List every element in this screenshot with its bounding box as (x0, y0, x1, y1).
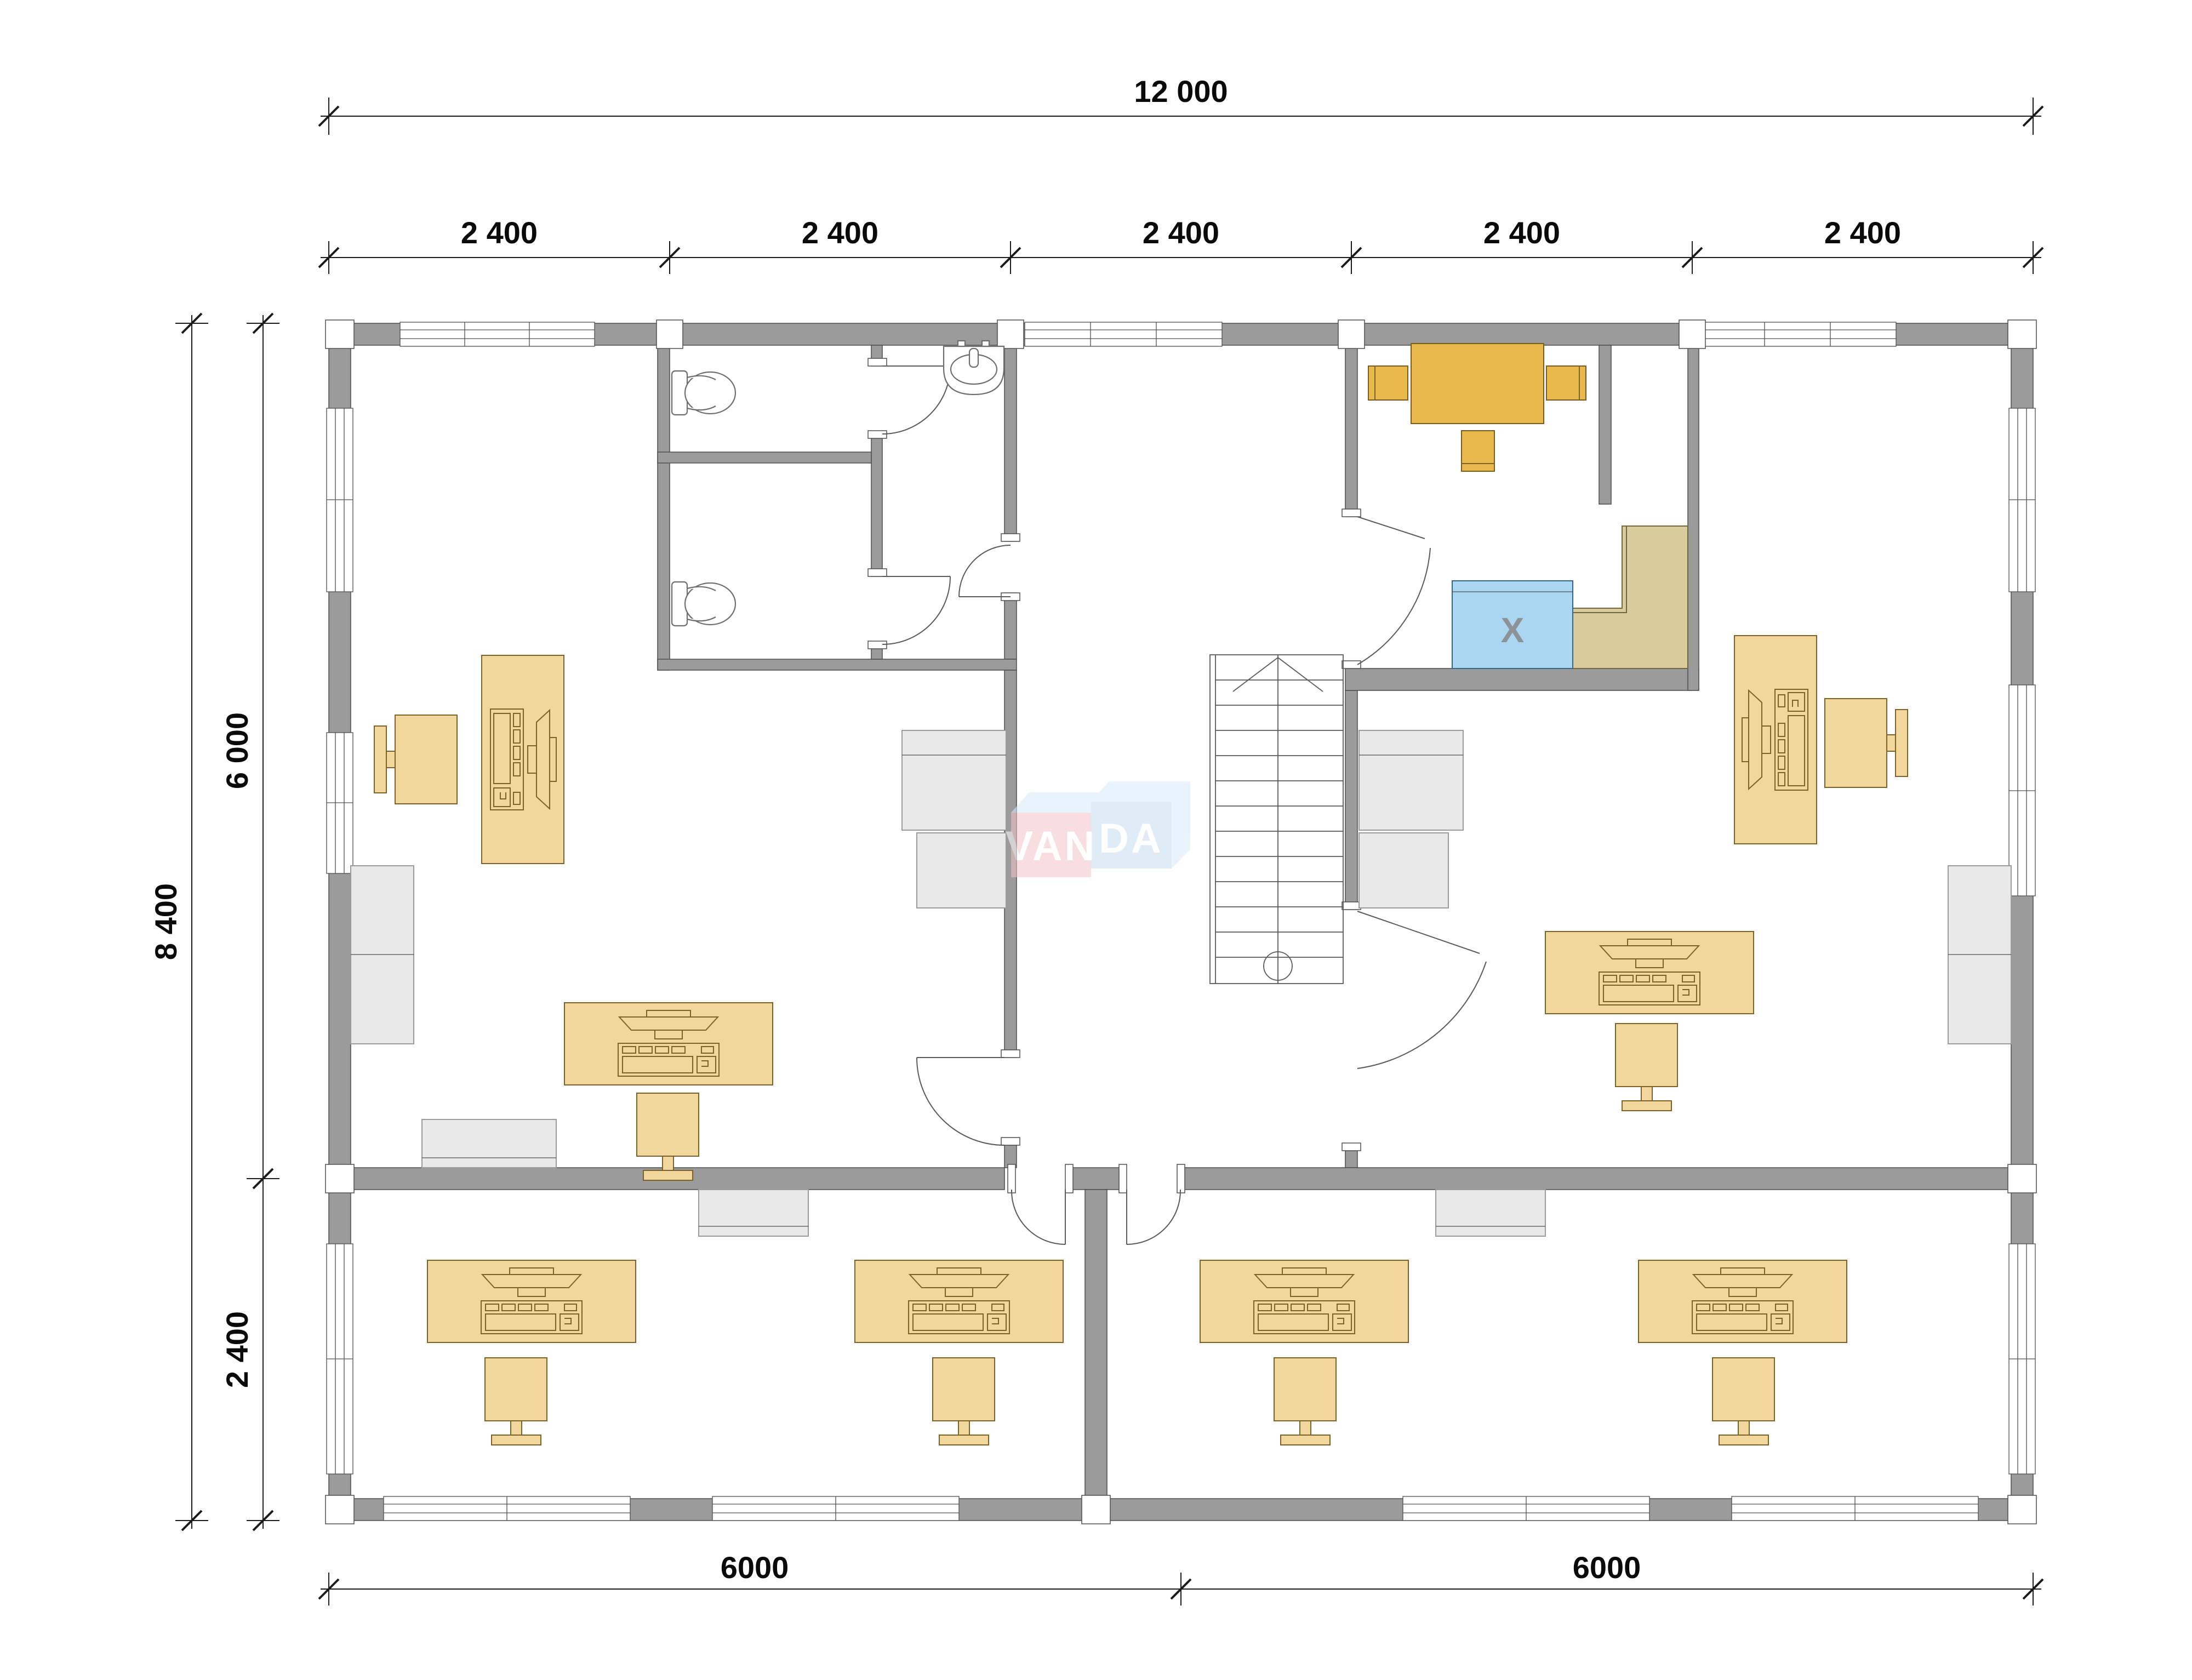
sofa (902, 730, 1006, 908)
dimension-top-bays: 2 400 2 400 2 400 2 400 2 400 (319, 215, 2043, 274)
dimension-left-total: 8 400 (149, 313, 208, 1530)
door-swing (917, 1058, 1004, 1145)
office-chair (1825, 699, 1908, 787)
sofa (1359, 730, 1463, 908)
window (712, 1496, 959, 1521)
door-swing (959, 545, 1011, 597)
office-chair (374, 715, 457, 804)
kitchen-chair (1368, 366, 1408, 400)
window (2009, 408, 2035, 592)
dim-label-bay-3: 2 400 (1143, 215, 1219, 250)
dim-label-lower-height: 2 400 (220, 1311, 254, 1388)
floor-plan-canvas: 12 000 2 400 2 400 2 400 2 400 2 400 8 4… (0, 0, 2192, 1680)
desk-workstation (1545, 932, 1754, 1014)
desk-workstation (427, 1260, 636, 1342)
window (1025, 322, 1222, 346)
office-chair (1274, 1358, 1336, 1445)
window (384, 1496, 630, 1521)
dim-label-bottom-right: 6000 (1573, 1550, 1641, 1585)
toilet-icon (672, 582, 735, 626)
window (1732, 1496, 1978, 1521)
kitchen-counter (1573, 526, 1688, 668)
sanitary (672, 341, 1004, 626)
room-kitchen: X (1368, 344, 1688, 668)
office-chair (637, 1093, 699, 1180)
window (1699, 322, 1896, 346)
room-left-office (351, 655, 773, 1180)
kitchen-chair (1546, 366, 1586, 400)
kitchen-chair (1462, 431, 1494, 471)
window (327, 1244, 353, 1474)
door-swing (1127, 1190, 1180, 1244)
dim-label-total-width: 12 000 (1134, 74, 1228, 108)
desk-workstation (1200, 1260, 1408, 1342)
desk-workstation (1734, 636, 1817, 844)
stairs-up-arrow (1233, 655, 1323, 984)
office-chair (1616, 1024, 1677, 1111)
vanda-logo: VAN DA (1006, 781, 1190, 877)
dimension-top-total: 12 000 (319, 74, 2043, 135)
appliance-x: X (1452, 581, 1573, 668)
window (327, 408, 353, 592)
dimension-left-splits: 6 000 2 400 (220, 313, 279, 1530)
appliance-x-label: X (1501, 610, 1525, 650)
door-swing (882, 576, 950, 644)
logo-text-da: DA (1099, 815, 1163, 862)
office-chair (933, 1358, 995, 1445)
sink-icon (944, 341, 1004, 395)
room-bottom-left (427, 1190, 1063, 1445)
office-chair (1713, 1358, 1774, 1445)
stairs (1210, 655, 1343, 984)
side-table (1436, 1190, 1545, 1236)
dim-label-total-height: 8 400 (149, 883, 183, 960)
logo-text-van: VAN (1006, 823, 1097, 870)
dim-label-upper-height: 6 000 (220, 712, 254, 789)
dim-label-bay-2: 2 400 (802, 215, 878, 250)
window (2009, 1244, 2035, 1474)
window (327, 733, 353, 873)
desk-workstation (482, 655, 564, 864)
office-chair (485, 1358, 547, 1445)
door-swing (1357, 517, 1430, 665)
door-swing (1012, 1190, 1065, 1244)
dim-label-bottom-left: 6000 (721, 1550, 789, 1585)
toilet-icon (672, 371, 735, 415)
door-swing (882, 366, 950, 434)
window (1403, 1496, 1649, 1521)
window (2009, 685, 2035, 896)
dim-label-bay-1: 2 400 (461, 215, 538, 250)
desk-workstation (564, 1003, 773, 1085)
desk-workstation (855, 1260, 1063, 1342)
door-swing (1357, 911, 1486, 1068)
dim-label-bay-4: 2 400 (1483, 215, 1560, 250)
room-right-office (1545, 636, 2011, 1111)
side-table (699, 1190, 808, 1236)
dimension-bottom: 6000 6000 (319, 1550, 2043, 1605)
meeting-table (1411, 344, 1544, 424)
dim-label-bay-5: 2 400 (1824, 215, 1901, 250)
wall-piers (326, 320, 2036, 1524)
room-bottom-right (1200, 1190, 1847, 1445)
window (400, 322, 595, 346)
desk-workstation (1639, 1260, 1847, 1342)
side-table (422, 1119, 556, 1168)
